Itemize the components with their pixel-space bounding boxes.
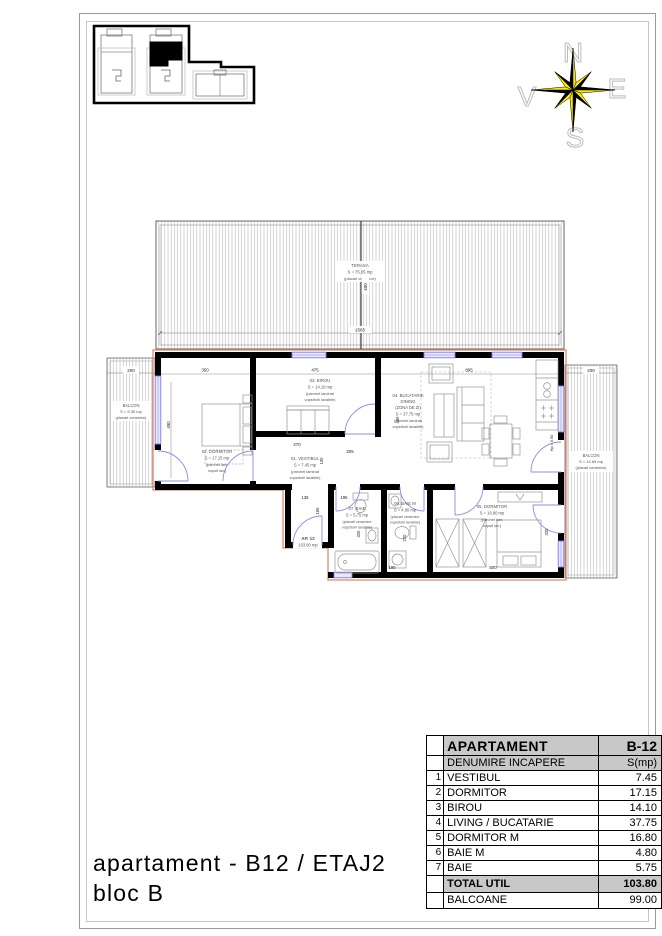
row-num: 7 — [427, 861, 444, 876]
birou-area: S = 14.10 mp — [308, 385, 333, 390]
dormitor-name: 02. DORMITOR — [202, 449, 232, 454]
window-living-1 — [424, 352, 455, 358]
baie-area: S = 5.75 mp — [346, 513, 369, 518]
apartment-area-table: APARTAMENT B-12 DENUMIRE INCAPERE S(mp) … — [426, 735, 662, 909]
dim-terrace-width: 1565 — [355, 328, 366, 333]
dim-dormitor-m-height: 320 — [544, 528, 549, 536]
dim-baie-height: 320 — [356, 530, 361, 538]
dim-entry-width: 135 — [302, 495, 310, 500]
baie-finish-1: (placari ceramice — [343, 520, 372, 524]
birou-name: 03. BIROU — [310, 378, 331, 383]
row-label: DORMITOR M — [444, 831, 599, 846]
total-value: 103.80 — [599, 876, 662, 893]
row-value: 16.80 — [599, 831, 662, 846]
vestibul-finish-2: vopsitorii lavabile) — [290, 475, 322, 480]
dim-vestibul-width: 270 — [293, 442, 301, 447]
key-plan-building-outline — [94, 26, 254, 103]
dim-baie-m-height: 220 — [402, 534, 407, 542]
dining-set — [482, 416, 520, 466]
table-balconies-row: BALCOANE 99.00 — [427, 893, 662, 909]
terrace-area: S = 75.05 mp — [347, 270, 373, 275]
row-value: 7.45 — [599, 771, 662, 786]
balcony-right-finish: (placari ceramice) — [576, 465, 608, 470]
wardrobe-1 — [436, 519, 459, 567]
row-num: 2 — [427, 786, 444, 801]
row-label: VESTIBUL — [444, 771, 599, 786]
dormitor-m-finish-1: (parchet lam. — [481, 517, 504, 522]
balcony-right-name: BALCON — [583, 453, 600, 458]
row-value: 17.15 — [599, 786, 662, 801]
dim-birou-width: 475 — [311, 368, 319, 373]
balcony-left-area: S = 9.30 mp — [120, 409, 142, 414]
living-name-3: (ZONA DE ZI) — [395, 405, 421, 410]
kitchen-counter — [536, 360, 558, 430]
row-num: 3 — [427, 801, 444, 816]
baie-name: 07. BAIE — [349, 506, 366, 511]
balcony-right-area: S = 14.65 mp — [579, 459, 604, 464]
vestibul-area: S = 7.45 mp — [294, 463, 317, 468]
header-num-cell — [427, 736, 444, 756]
table-title: APARTAMENT — [444, 736, 599, 756]
balcony-right: BALCON S = 14.65 mp (placari ceramice) 2… — [565, 365, 617, 578]
compass-south-label: S — [566, 122, 585, 153]
terrace: TERASA S = 75.05 mp (placari ceramice) 1… — [156, 221, 564, 349]
compass-star — [531, 48, 615, 132]
baie-m-finish-2: vopsitorii lavabile) — [390, 521, 421, 525]
label-baie: 07. BAIE S = 5.75 mp (placari ceramice v… — [342, 506, 373, 530]
balconies-label: BALCOANE — [444, 893, 599, 909]
living-area: S = 37.75 mp — [396, 412, 421, 417]
window-birou — [292, 352, 326, 358]
window-living-balcony — [558, 386, 564, 432]
row-label: BAIE M — [444, 846, 599, 861]
coffee-table — [434, 394, 454, 437]
dim-baie-m-width: 190 — [389, 565, 397, 570]
table-subheader-row: DENUMIRE INCAPERE S(mp) — [427, 756, 662, 771]
table-row: 6 BAIE M 4.80 — [427, 846, 662, 861]
table-total-row: TOTAL UTIL 103.80 — [427, 876, 662, 893]
compass-east-label: E — [608, 73, 627, 104]
dim-balcony-left: 200 — [127, 368, 135, 373]
window-dormitor-m — [558, 541, 564, 567]
plan-sheet: N E S V — [0, 0, 662, 936]
row-value: 4.80 — [599, 846, 662, 861]
baie-finish-2: vopsitorii lavabile) — [342, 526, 373, 530]
door-living-balcony — [531, 442, 561, 472]
row-num: 1 — [427, 771, 444, 786]
armchair-top — [429, 364, 453, 383]
table-row: 7 BAIE 5.75 — [427, 861, 662, 876]
dormitor-m-name: 05. DORMITOR — [477, 504, 507, 509]
label-birou: 03. BIROU S = 14.10 mp (parchet laminat … — [305, 378, 337, 402]
dim-parapet-height: Hp = 0.90 — [550, 435, 554, 452]
row-value: 37.75 — [599, 816, 662, 831]
door-birou — [345, 404, 375, 434]
label-baie-m: 06. BAIE M S = 4.80 mp (placari ceramice… — [390, 501, 421, 525]
label-dormitor: 02. DORMITOR S = 17.15 mp (parchet lam. … — [202, 449, 232, 473]
terrace-finish: (placari ceramice) — [344, 276, 376, 281]
dim-dormitor-m-width: 500 — [489, 565, 497, 570]
table-row: 1 VESTIBUL 7.45 — [427, 771, 662, 786]
key-plan — [94, 26, 254, 103]
dim-terrace-height: 400 — [363, 283, 368, 291]
room-labels: 02. DORMITOR S = 17.15 mp (parchet lam. … — [202, 378, 507, 548]
wall-openings — [155, 376, 565, 579]
dim-entry-height: 165 — [315, 507, 320, 515]
kitchen-sink-icon — [544, 383, 551, 390]
table-header-row: APARTAMENT B-12 — [427, 736, 662, 756]
table-row: 2 DORMITOR 17.15 — [427, 786, 662, 801]
bathtub-icon — [335, 551, 379, 573]
armchair-bottom — [427, 442, 452, 462]
column-header-room: DENUMIRE INCAPERE — [444, 756, 599, 771]
ap-area: 103.80 mp — [298, 543, 318, 548]
balconies-value: 99.00 — [599, 893, 662, 909]
vestibul-finish-1: (parchet laminat — [291, 469, 320, 474]
ap-number: AP. 12 — [301, 536, 315, 541]
total-label: TOTAL UTIL — [444, 876, 599, 893]
baie-m-name: 06. BAIE M — [394, 501, 416, 506]
sofa-living — [457, 387, 484, 441]
stove-icon — [541, 406, 554, 419]
row-label: DORMITOR — [444, 786, 599, 801]
vestibul-name: 01. VESTIBUL — [291, 456, 320, 461]
dim-baie-width: 195 — [341, 495, 349, 500]
sink-baie — [366, 528, 378, 543]
balcony-left: BALCON S = 9.30 mp (placari ceramice) 20… — [107, 358, 155, 487]
compass-west-label: V — [518, 81, 537, 112]
label-vestibul: 01. VESTIBUL S = 7.45 mp (parchet lamina… — [290, 456, 322, 480]
living-name: 04. BUCATARIE — [392, 393, 423, 398]
dormitor-m-finish-2: vopsit lav.) — [483, 523, 502, 528]
dormitor-finish-1: (parchet lam. — [206, 462, 229, 467]
plan-title-line1: apartament - B12 / ETAJ2 — [93, 848, 386, 878]
table-row: 3 BIROU 14.10 — [427, 801, 662, 816]
baie-m-finish-1: (placari ceramice — [391, 515, 420, 519]
row-num: 6 — [427, 846, 444, 861]
bed-dormitor-m — [497, 520, 541, 567]
dim-dormitor-width: 350 — [201, 368, 209, 373]
balcony-left-finish: (placari ceramice) — [116, 415, 148, 420]
dim-balcony-right: 200 — [587, 368, 595, 373]
dim-hall-opening: 205 — [346, 449, 354, 454]
living-name-2: DINING — [400, 399, 416, 404]
dim-kitchen-height: 490 — [395, 416, 400, 424]
window-dormitor — [155, 376, 161, 444]
balcony-left-name: BALCON — [123, 403, 140, 408]
label-apartment-number: AP. 12 103.80 mp — [298, 536, 318, 548]
dormitor-finish-2: vopsit lav.) — [208, 468, 227, 473]
dim-hall-height: 100 — [319, 457, 324, 465]
row-value: 14.10 — [599, 801, 662, 816]
row-label: BIROU — [444, 801, 599, 816]
baie-m-area: S = 4.80 mp — [394, 508, 417, 513]
dim-dormitor-height: 490 — [166, 421, 171, 429]
row-label: LIVING / BUCATARIE — [444, 816, 599, 831]
window-kitchen — [492, 352, 522, 358]
table-row: 4 LIVING / BUCATARIE 37.75 — [427, 816, 662, 831]
shelf-dormitor-m — [498, 492, 542, 502]
compass-rose-icon: N E S V — [518, 37, 627, 153]
row-num: 4 — [427, 816, 444, 831]
balconies-num-cell — [427, 893, 444, 909]
dormitor-m-area: S = 16.80 mp — [480, 511, 505, 516]
column-header-area: S(mp) — [599, 756, 662, 771]
table-row: 5 DORMITOR M 16.80 — [427, 831, 662, 846]
living-finish-2: vopsitorii lavabile) — [393, 424, 425, 429]
dormitor-area: S = 17.15 mp — [205, 456, 230, 461]
sofa-birou — [287, 406, 329, 434]
terrace-name: TERASA — [351, 263, 369, 268]
birou-finish-1: (parchet laminat — [306, 391, 335, 396]
row-num: 5 — [427, 831, 444, 846]
label-dormitor-m: 05. DORMITOR S = 16.80 mp (parchet lam. … — [477, 504, 507, 528]
birou-finish-2: vopsitorii lavabile) — [305, 397, 337, 402]
plan-title-line2: bloc B — [93, 878, 386, 908]
apartment-id: B-12 — [599, 736, 662, 756]
dim-living-width: 895 — [465, 368, 473, 373]
subheader-num-cell — [427, 756, 444, 771]
title-block: apartament - B12 / ETAJ2 bloc B — [93, 848, 386, 909]
total-num-cell — [427, 876, 444, 893]
door-dormitor-balcony — [158, 451, 188, 481]
row-label: BAIE — [444, 861, 599, 876]
row-value: 5.75 — [599, 861, 662, 876]
